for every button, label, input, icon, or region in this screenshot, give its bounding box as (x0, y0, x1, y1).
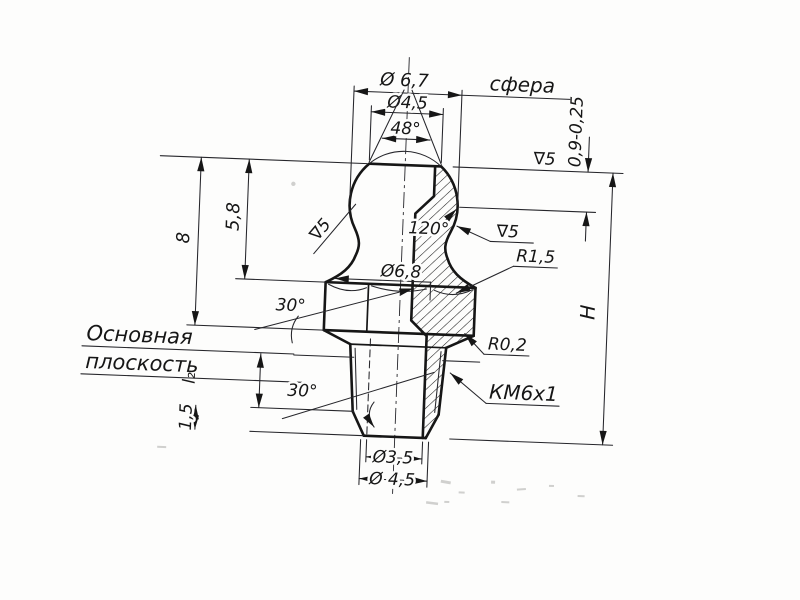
dim-tip-chamfer-height (195, 405, 365, 435)
finish-mark-top: ∇5 (532, 149, 556, 170)
hex-diameter-label: Ø6,8 (379, 261, 421, 283)
finish-mark-seat: ∇5 (495, 222, 519, 243)
equator-plane-ext (460, 207, 596, 212)
thread-label: КМ6х1 (489, 379, 559, 406)
l2-label: l₂ (180, 372, 200, 384)
relief-radius-label: R0,2 (488, 334, 528, 355)
base-plane-label-1: Основная (86, 321, 193, 349)
dim-sphere-diameter (350, 86, 570, 209)
cap-height-label: 0,9-0,25 (565, 96, 588, 168)
grease-fitting-drawing: Ø 6,7 сфера Ø4,5 48° 0,9-0,25 ∇5 (0, 0, 800, 600)
hidden-bore-line (367, 339, 371, 435)
tip-chamfer-height-label: 1,5 (176, 403, 197, 431)
hex-chamfer-angle-label: 30° (275, 295, 306, 316)
sphere-diameter-label: Ø 6,7 (379, 69, 430, 92)
cone-angle-label: 48° (390, 119, 421, 140)
tip-chamfer-angle-label: 30° (287, 381, 318, 402)
height-8-label: 8 (173, 232, 194, 244)
drawing-sheet: Ø 6,7 сфера Ø4,5 48° 0,9-0,25 ∇5 (0, 0, 800, 600)
flat-plane-ext-left (160, 156, 367, 164)
bore-diameter-label: Ø3,5 (371, 447, 413, 469)
flat-diameter-label: Ø4,5 (386, 92, 428, 114)
overall-height-label: H (575, 304, 600, 320)
end-diameter-label: Ø 4,5 (368, 469, 416, 491)
dim-height-8 (187, 157, 330, 330)
finish-mark-neck: ∇5 (305, 215, 335, 246)
seat-angle-label: 120° (408, 218, 450, 240)
finish-mark-seat-leader (456, 226, 533, 243)
neck-radius-label: R1,5 (516, 246, 556, 267)
height-5-8-label: 5,8 (223, 202, 245, 231)
sphere-note-label: сфера (489, 71, 555, 97)
dim-cap-height (585, 137, 589, 241)
section-hatch (407, 166, 480, 440)
